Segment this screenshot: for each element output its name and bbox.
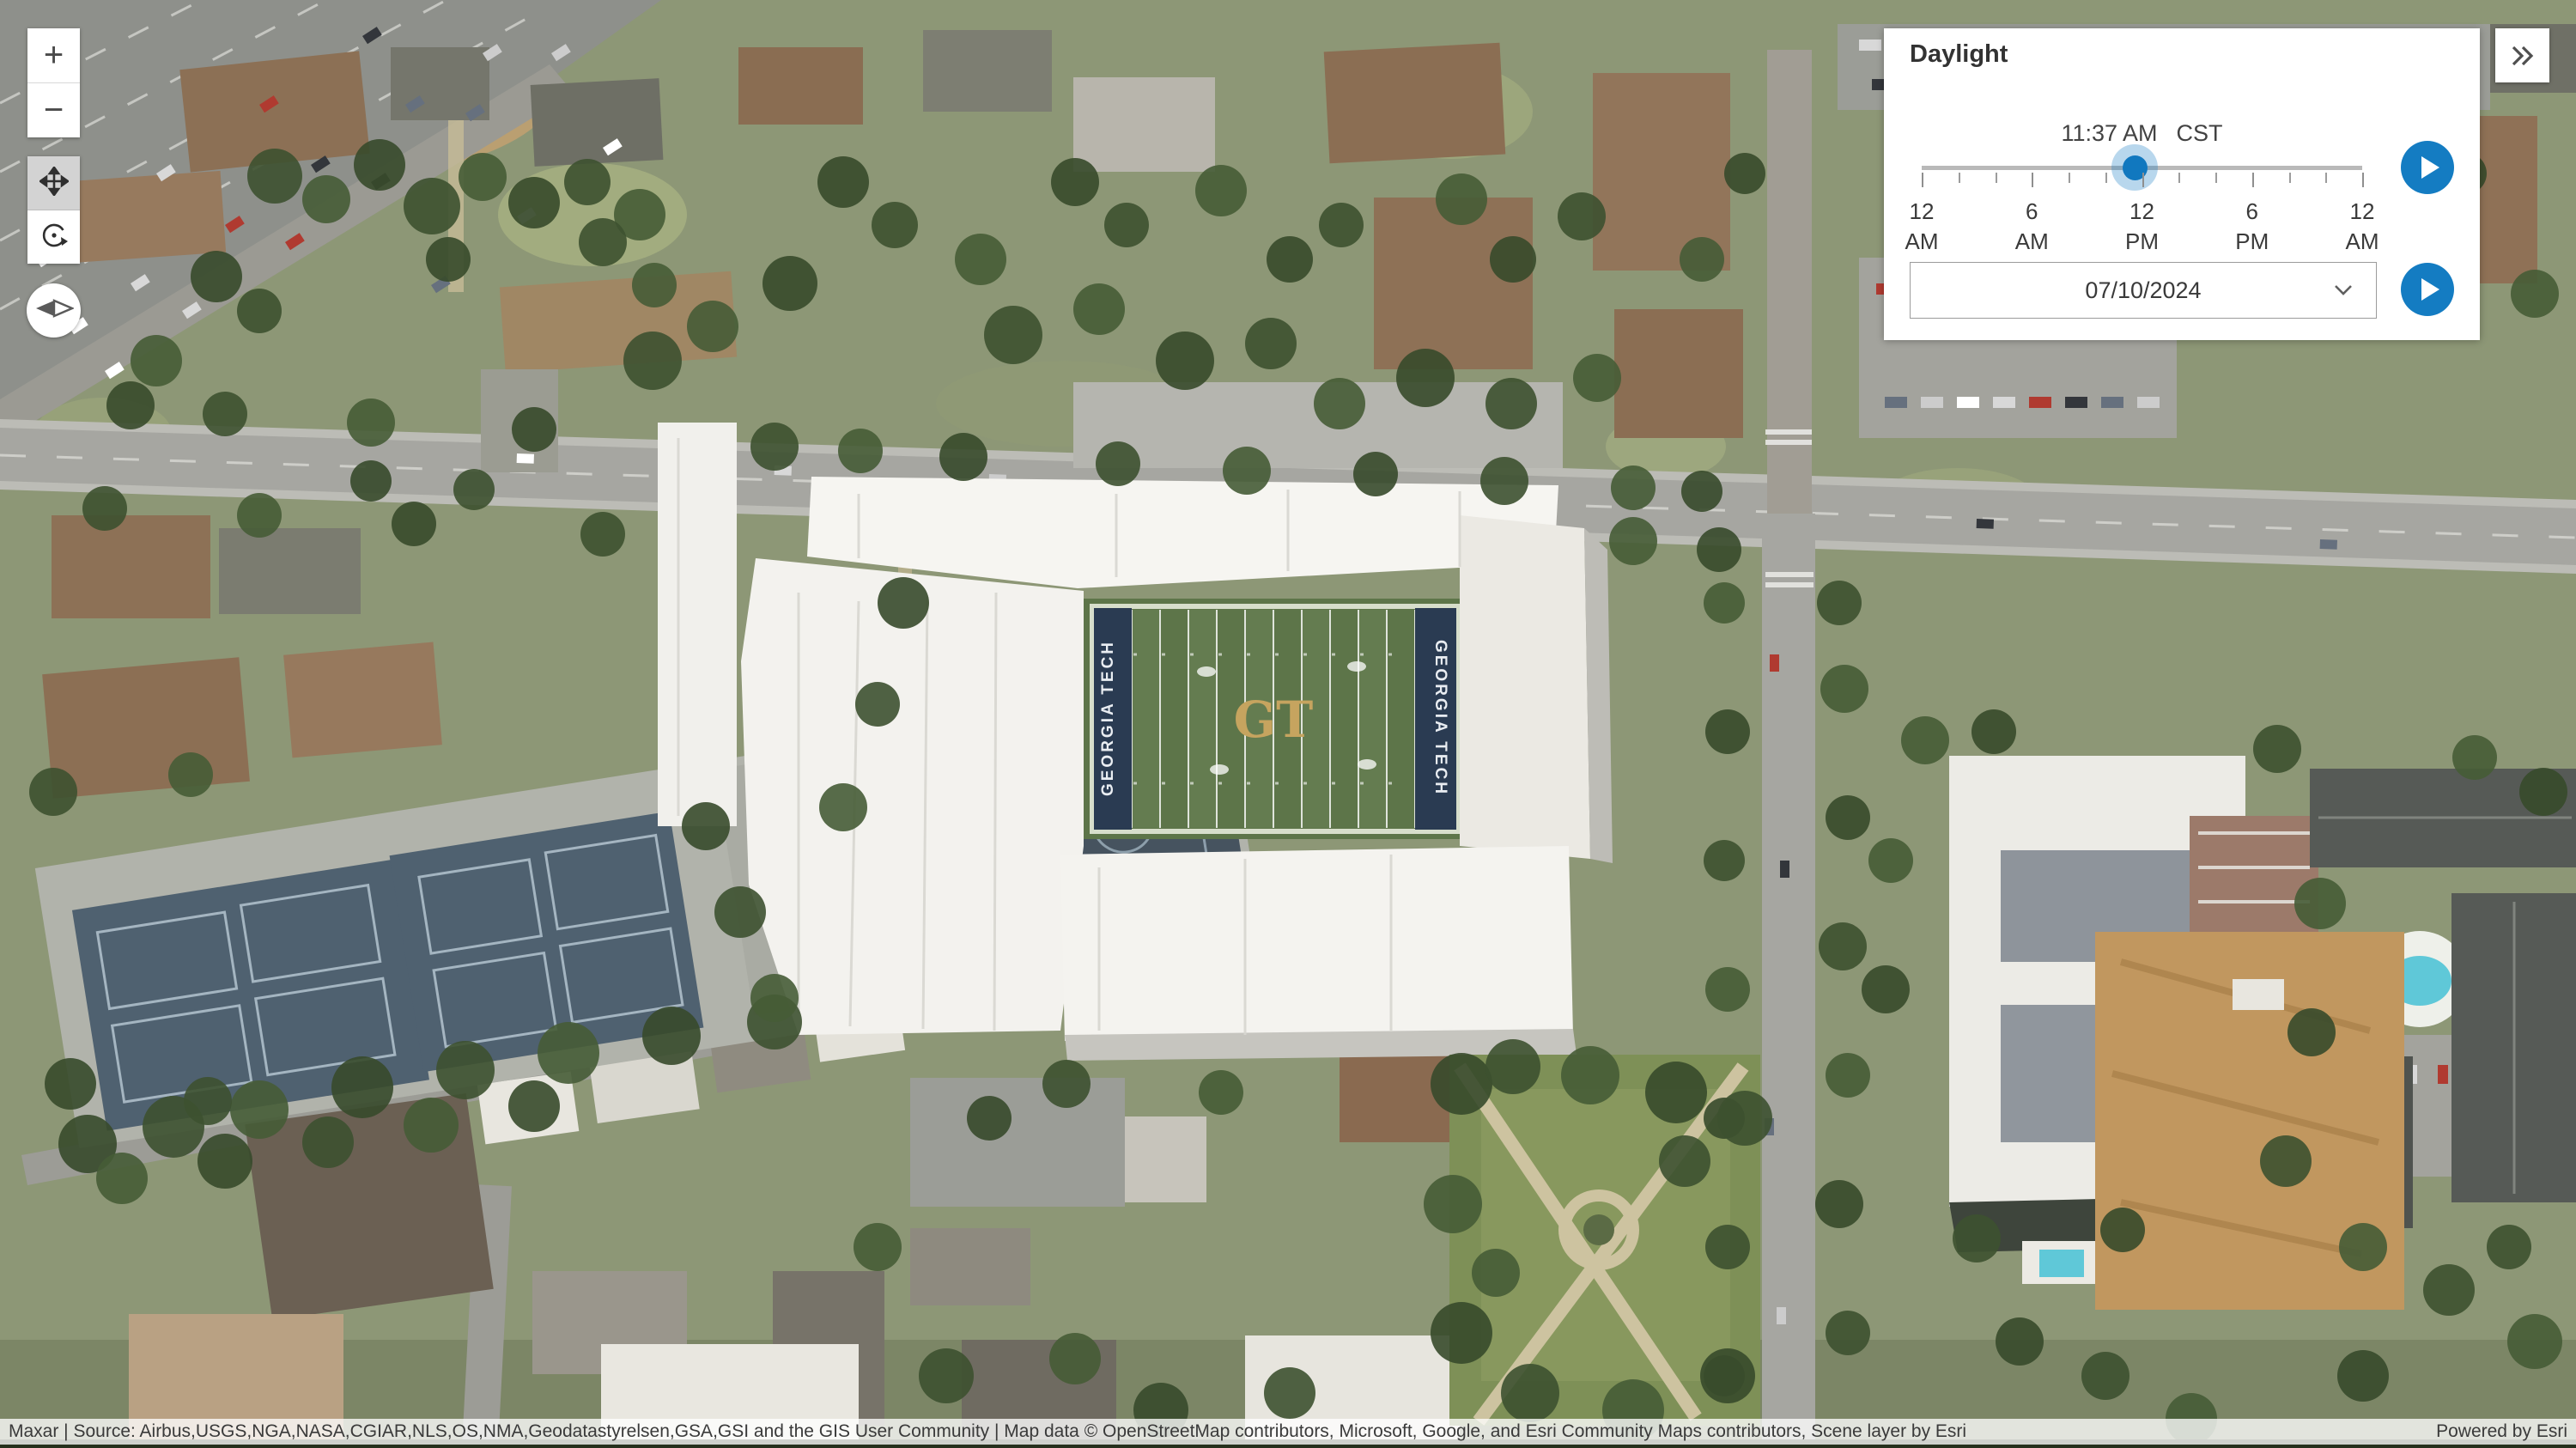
slider-hour-label: 6AM xyxy=(1993,197,2070,257)
slider-tick xyxy=(1959,173,1960,183)
slider-hour-label: 12AM xyxy=(2324,197,2401,257)
endzone-right-text: GEORGIA TECH xyxy=(1431,640,1449,796)
chevron-down-icon xyxy=(2333,283,2354,297)
date-select[interactable]: 07/10/2024 xyxy=(1910,262,2377,319)
attribution-bar: Maxar | Source: Airbus,USGS,NGA,NASA,CGI… xyxy=(0,1419,2576,1445)
slider-tick xyxy=(1922,173,1923,187)
field-center-logo: GT xyxy=(1234,691,1314,749)
slider-tick xyxy=(2178,173,2180,183)
daylight-panel: Daylight 11:37 AMCST 12AM6AM12PM6PM12AM … xyxy=(1884,28,2480,340)
football-field: GEORGIA TECH GEORGIA TECH GT xyxy=(1084,599,1460,839)
play-icon xyxy=(2421,156,2439,179)
app-screen: GEORGIA TECH GEORGIA TECH GT xyxy=(0,0,2576,1448)
slider-tick xyxy=(1996,173,1997,183)
slider-tick xyxy=(2362,173,2364,187)
slider-tick xyxy=(2032,173,2033,187)
compass-button[interactable] xyxy=(27,283,81,338)
collapse-panel-button[interactable] xyxy=(2495,28,2549,82)
slider-tick xyxy=(2289,173,2291,183)
slider-tick xyxy=(2325,173,2327,183)
zoom-out-button[interactable]: − xyxy=(27,83,80,137)
date-value: 07/10/2024 xyxy=(2085,277,2201,304)
double-chevron-right-icon xyxy=(2508,44,2537,68)
compass-icon xyxy=(34,299,74,322)
slider-tick xyxy=(2252,173,2254,187)
slider-hour-label: 12PM xyxy=(2104,197,2181,257)
time-value: 11:37 AM xyxy=(2061,120,2157,146)
zoom-control: + − xyxy=(27,28,80,137)
play-date-button[interactable] xyxy=(2401,263,2454,316)
slider-tick xyxy=(2105,173,2107,183)
zoom-in-button[interactable]: + xyxy=(27,28,80,83)
rotate-tool-button[interactable] xyxy=(27,210,80,264)
rotate-icon xyxy=(39,221,69,254)
timezone-label: CST xyxy=(2177,120,2223,146)
play-icon xyxy=(2421,278,2439,301)
endzone-left-text: GEORGIA TECH xyxy=(1099,640,1117,796)
navigation-toolbox xyxy=(27,156,80,264)
slider-hour-label: 12AM xyxy=(1883,197,1960,257)
time-slider-ticks xyxy=(1922,173,2362,192)
pan-icon xyxy=(39,167,69,200)
slider-tick xyxy=(2215,173,2217,183)
time-display: 11:37 AMCST xyxy=(1922,120,2362,147)
play-time-button[interactable] xyxy=(2401,141,2454,194)
attribution-sources: Maxar | Source: Airbus,USGS,NGA,NASA,CGI… xyxy=(9,1421,1966,1442)
vertical-street xyxy=(1762,50,1815,1448)
slider-hour-label: 6PM xyxy=(2214,197,2291,257)
slider-tick xyxy=(2069,173,2070,183)
slider-tick xyxy=(2142,173,2144,187)
panel-title: Daylight xyxy=(1910,40,2008,69)
pan-tool-button[interactable] xyxy=(27,156,80,210)
powered-by-esri: Powered by Esri xyxy=(2436,1421,2567,1442)
